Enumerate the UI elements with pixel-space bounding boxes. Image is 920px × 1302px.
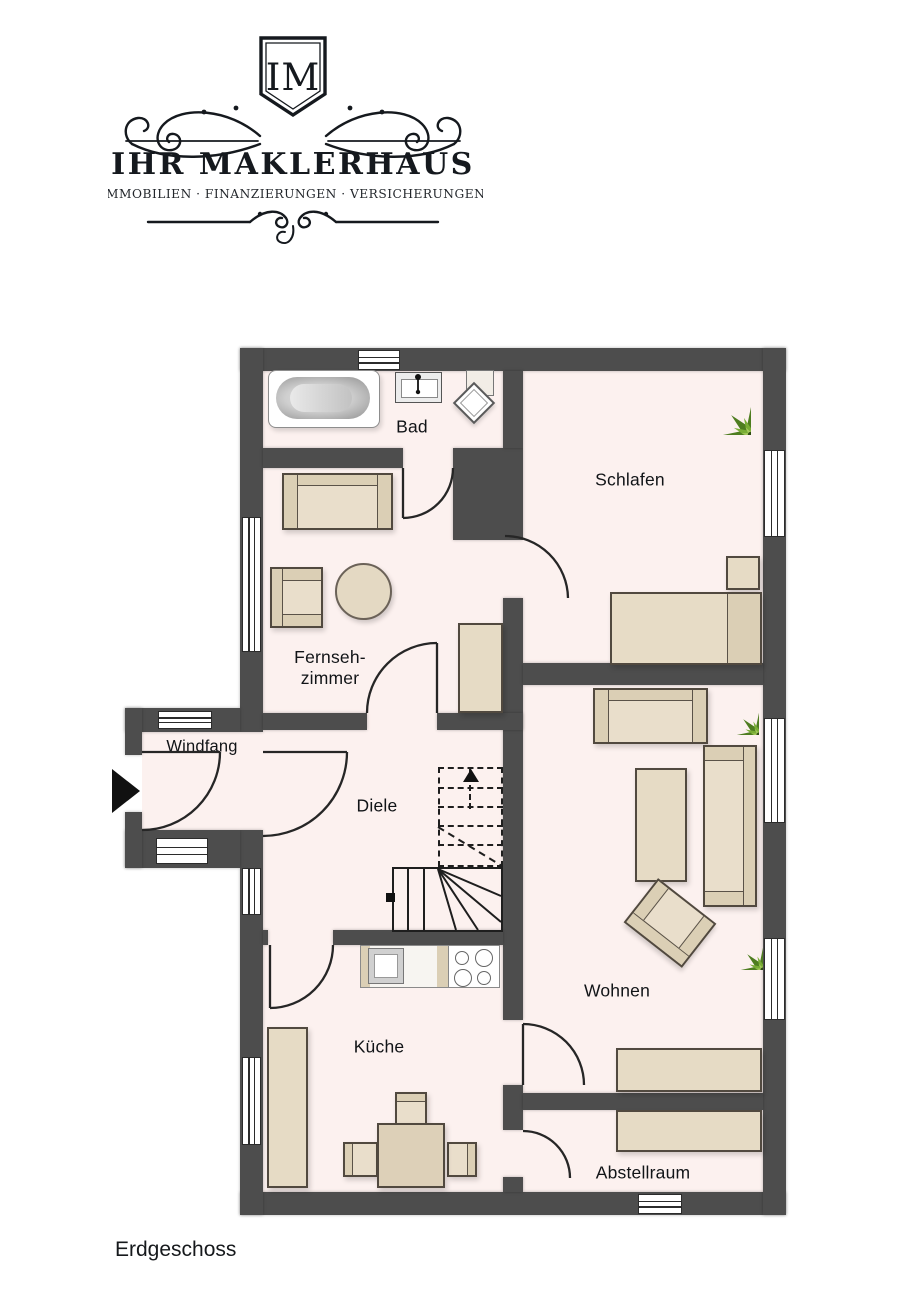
window [158,711,212,729]
wall [333,930,503,945]
room-label-schlafen: Schlafen [595,470,665,491]
stair-post [386,893,395,902]
stair-tread [438,844,503,846]
wall [263,713,367,730]
wall [240,1192,786,1215]
wall [523,1093,763,1110]
chair [343,1142,378,1177]
sink [395,372,442,403]
staircase-lower-flight [392,867,503,932]
logo-tagline: IMMOBILIEN · FINANZIERUNGEN · VERSICHERU… [108,187,483,201]
stair-tread [438,825,503,827]
window [764,450,785,537]
entry-arrow-icon [112,769,140,813]
wall [263,930,268,945]
wall [125,812,142,868]
room-label-fernsehzimmer: Fernseh- zimmer [294,647,366,689]
wall [503,1177,523,1192]
sofa [703,745,757,907]
window [242,1057,261,1145]
kitchen-counter [360,945,500,988]
round-table [335,563,392,620]
room-label-bad: Bad [396,417,428,438]
window [358,350,400,370]
wall [263,448,403,468]
logo-monogram: IM [266,56,321,99]
sofa [593,688,708,744]
coffee-table [635,768,687,882]
kitchen-sink [368,948,404,984]
wall [125,708,142,755]
stair-up-arrow-icon [463,769,479,782]
wall [240,348,786,371]
room-label-kueche: Küche [354,1037,405,1058]
cabinet [458,623,503,713]
plant-icon [693,377,751,435]
stove [448,946,499,987]
room-label-wohnen: Wohnen [584,981,650,1002]
dining-table [377,1123,445,1188]
floor-label: Erdgeschoss [115,1238,236,1262]
bathtub [268,370,380,428]
wall [453,448,523,540]
shelf [616,1110,762,1152]
wall [437,713,523,730]
room-label-windfang: Windfang [166,738,237,757]
window [242,868,261,915]
wall [503,1085,523,1130]
window [156,838,208,864]
wall [503,598,523,1020]
tall-cabinet [267,1027,308,1188]
window [638,1194,682,1214]
armchair [270,567,323,628]
logo-company-name: IHR MAKLERHAUS [111,147,475,182]
bed-pillow [727,594,760,663]
window [764,718,785,823]
chair [447,1142,477,1177]
nightstand [726,556,760,590]
window [242,517,261,652]
room-label-abstellraum: Abstellraum [596,1163,691,1184]
room-label-diele: Diele [357,796,398,817]
company-logo: IM IHR MAKLERHAUS IMMOBILIEN · FINANZIER… [108,22,483,262]
wall [523,663,763,685]
plant-icon [717,924,763,970]
plant-icon [713,689,759,735]
sofa [282,473,393,530]
sideboard [616,1048,762,1092]
window [764,938,785,1020]
floorplan-page: IM IHR MAKLERHAUS IMMOBILIEN · FINANZIER… [0,0,920,1302]
bed [610,592,762,665]
wall [503,371,523,448]
chair [395,1092,427,1125]
